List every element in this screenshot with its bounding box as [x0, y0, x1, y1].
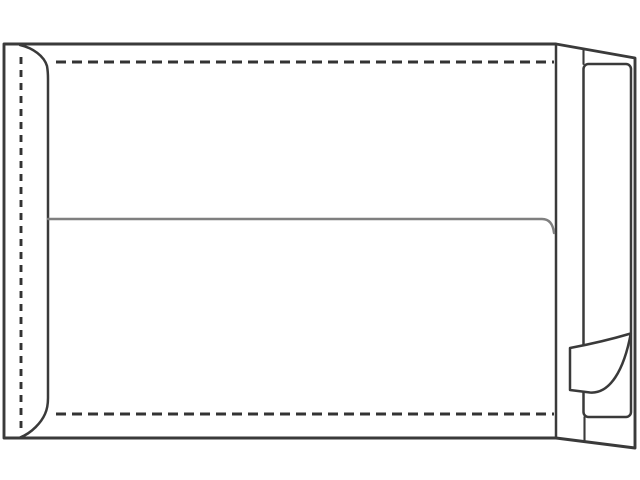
center-seam-line	[48, 219, 554, 233]
envelope-drawing	[0, 0, 640, 480]
envelope-silhouette	[4, 44, 635, 448]
liner-peeled-corner	[570, 334, 631, 393]
page: { "illustration": { "subject": "Blank po…	[0, 0, 640, 480]
left-seam-edge-line	[20, 45, 48, 438]
envelope-illustration	[0, 0, 640, 480]
